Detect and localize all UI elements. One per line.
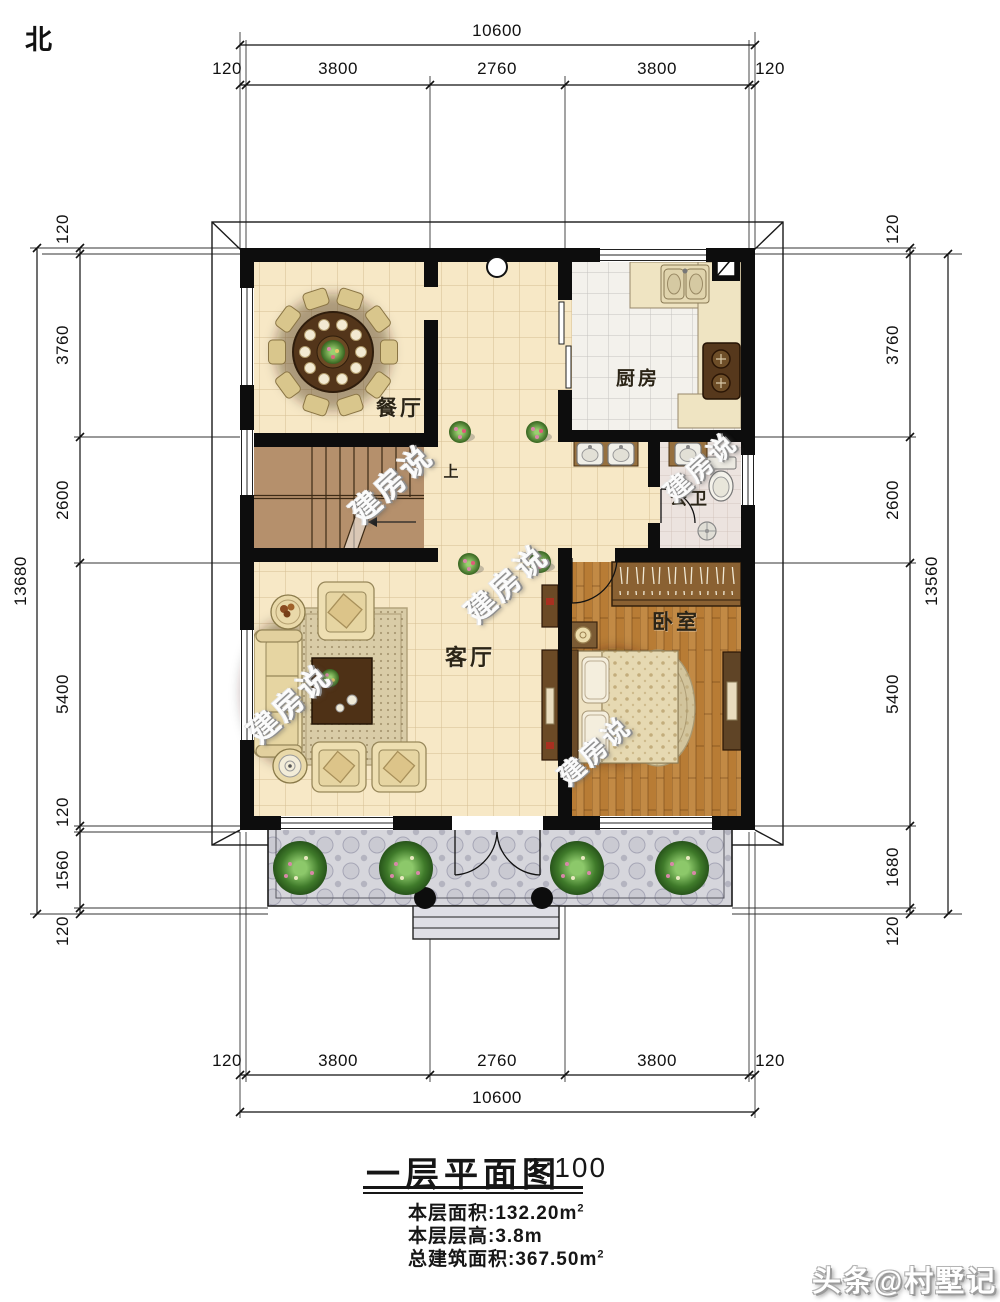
dim-right-seg: 120 <box>883 916 903 946</box>
room-label-kitchen: 厨房 <box>616 364 660 391</box>
dim-left-seg: 3760 <box>53 325 73 365</box>
stair-window-west <box>240 430 254 495</box>
floor-plan-sheet: 北 10600 120 3800 2760 3800 120 120 3800 … <box>0 0 1000 1302</box>
side-table-top <box>271 595 305 629</box>
dim-right-seg: 1680 <box>883 847 903 887</box>
dim-top-seg: 2760 <box>477 59 517 79</box>
tv-cabinet-bedroom <box>723 652 741 750</box>
total-area-sup: 2 <box>597 1249 604 1261</box>
dim-top-seg: 120 <box>755 59 785 79</box>
dim-left-seg: 120 <box>53 916 73 946</box>
dim-bottom-seg: 120 <box>755 1051 785 1071</box>
dim-left-seg: 1560 <box>53 850 73 890</box>
dim-left-seg: 120 <box>53 214 73 244</box>
credit-watermark: 头条@村墅记 <box>812 1258 997 1300</box>
bath-window-east <box>741 455 755 505</box>
kitchen-sink <box>661 265 709 303</box>
nightstand <box>569 622 597 648</box>
dim-right-seg: 2600 <box>883 480 903 520</box>
hall-column-symbol <box>487 257 507 277</box>
dim-left-overall: 13680 <box>11 556 31 606</box>
floor-area-sup: 2 <box>577 1203 584 1215</box>
dim-right-seg: 5400 <box>883 674 903 714</box>
dim-top-overall: 10600 <box>472 21 522 41</box>
room-label-living: 客厅 <box>445 640 495 672</box>
dim-bottom-seg: 3800 <box>318 1051 358 1071</box>
steps <box>413 906 559 939</box>
stairs-up-label: 上 <box>443 461 458 482</box>
dim-right-seg: 3760 <box>883 325 903 365</box>
drawing-scale: 1:100 <box>527 1152 607 1184</box>
dim-bottom-seg: 120 <box>212 1051 242 1071</box>
kitchen-window <box>600 248 706 262</box>
north-indicator: 北 <box>25 18 52 57</box>
title-underline-thin <box>363 1192 583 1194</box>
dining-window-west <box>240 288 254 385</box>
dim-left-seg: 5400 <box>53 674 73 714</box>
dim-right-seg: 120 <box>883 214 903 244</box>
total-area-text: 总建筑面积:367.50m2 <box>408 1244 604 1271</box>
dim-bottom-seg: 3800 <box>637 1051 677 1071</box>
dim-left-seg: 120 <box>53 797 73 827</box>
bedroom-window-south <box>600 816 712 830</box>
wardrobe <box>612 562 741 606</box>
dim-top-seg: 120 <box>212 59 242 79</box>
basin <box>608 443 634 465</box>
dim-right-overall: 13560 <box>922 556 942 606</box>
basin <box>577 443 603 465</box>
dim-bottom-overall: 10600 <box>472 1088 522 1108</box>
dim-top-seg: 3800 <box>637 59 677 79</box>
dim-top-seg: 3800 <box>318 59 358 79</box>
dim-left-seg: 2600 <box>53 480 73 520</box>
armchair-top <box>318 582 374 640</box>
porch-column <box>531 887 553 909</box>
floor-drain <box>698 522 716 540</box>
dim-bottom-seg: 2760 <box>477 1051 517 1071</box>
side-table-bottom <box>273 749 307 783</box>
tv-cabinet-living <box>542 585 558 760</box>
living-window-south <box>281 816 393 830</box>
stove <box>703 343 740 399</box>
title-underline-thick <box>363 1186 583 1189</box>
armchair-bottom-right <box>372 742 426 792</box>
room-label-dining: 餐厅 <box>376 392 424 422</box>
armchair-bottom-left <box>312 742 366 792</box>
room-label-bedroom: 卧室 <box>652 606 700 636</box>
total-area-value: 总建筑面积:367.50m <box>408 1249 597 1270</box>
